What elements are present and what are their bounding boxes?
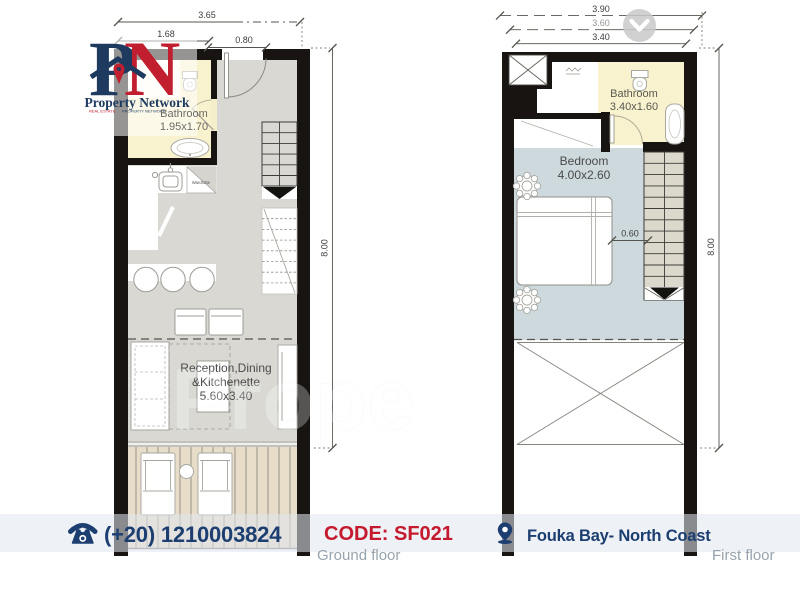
svg-text:(+20) 1210003824: (+20) 1210003824 xyxy=(104,522,282,547)
svg-text:Bathroom: Bathroom xyxy=(160,108,208,120)
svg-text:4.00x2.60: 4.00x2.60 xyxy=(558,168,611,182)
svg-text:8.00: 8.00 xyxy=(320,239,330,257)
svg-text:Fouka Bay- North Coast: Fouka Bay- North Coast xyxy=(527,527,711,545)
svg-text:3.40: 3.40 xyxy=(592,32,610,42)
svg-text:3.90: 3.90 xyxy=(592,4,610,14)
svg-text:3.60: 3.60 xyxy=(592,18,610,28)
svg-text:Prope: Prope xyxy=(171,352,415,448)
svg-text:3.40x1.60: 3.40x1.60 xyxy=(610,101,658,113)
svg-text:REAL ESTATE: REAL ESTATE xyxy=(89,109,116,114)
svg-text:First floor: First floor xyxy=(712,547,775,564)
svg-text:0.80: 0.80 xyxy=(235,35,253,45)
svg-text:CODE: SF021: CODE: SF021 xyxy=(324,523,453,545)
svg-text:Bedroom: Bedroom xyxy=(560,154,609,168)
svg-text:3.65: 3.65 xyxy=(198,10,216,20)
svg-text:Wardrobe: Wardrobe xyxy=(192,180,211,185)
svg-text:Ground floor: Ground floor xyxy=(317,547,400,564)
svg-text:Bathroom: Bathroom xyxy=(610,88,658,100)
svg-text:1.95x1.70: 1.95x1.70 xyxy=(160,121,208,133)
svg-text:1.68: 1.68 xyxy=(157,29,175,39)
svg-text:0.60: 0.60 xyxy=(621,229,639,239)
svg-text:8.00: 8.00 xyxy=(706,238,716,256)
